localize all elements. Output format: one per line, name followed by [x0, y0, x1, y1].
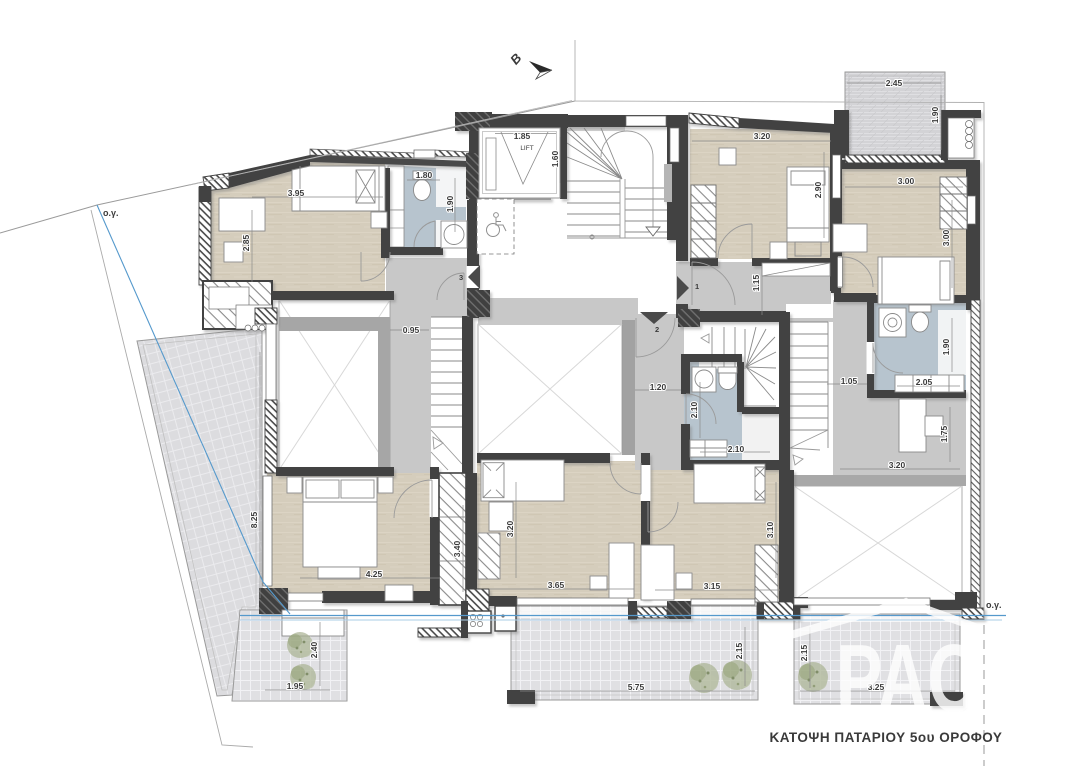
- svg-text:ΚΑΤΟΨΗ ΠΑΤΑΡΙΟΥ 5ου ΟΡΟΦΟΥ: ΚΑΤΟΨΗ ΠΑΤΑΡΙΟΥ 5ου ΟΡΟΦΟΥ: [770, 730, 1003, 745]
- svg-text:0.95: 0.95: [403, 325, 420, 335]
- svg-text:2.40: 2.40: [309, 641, 319, 658]
- svg-text:1: 1: [695, 282, 699, 291]
- svg-text:ο.γ.: ο.γ.: [103, 208, 119, 218]
- svg-text:3.40: 3.40: [452, 540, 462, 557]
- svg-text:2.45: 2.45: [886, 78, 903, 88]
- svg-text:2.90: 2.90: [813, 181, 823, 198]
- svg-text:3.20: 3.20: [889, 460, 906, 470]
- svg-text:1.60: 1.60: [550, 150, 560, 167]
- svg-text:1.85: 1.85: [514, 131, 531, 141]
- svg-text:1.90: 1.90: [941, 338, 951, 355]
- svg-text:ΡΑC: ΡΑC: [836, 625, 978, 732]
- svg-text:2.10: 2.10: [728, 444, 745, 454]
- svg-text:8.25: 8.25: [249, 511, 259, 528]
- svg-text:4.25: 4.25: [366, 569, 383, 579]
- svg-text:3.15: 3.15: [704, 581, 721, 591]
- svg-text:LIFT: LIFT: [520, 145, 533, 152]
- svg-text:3.95: 3.95: [288, 188, 305, 198]
- svg-text:2.05: 2.05: [916, 377, 933, 387]
- svg-text:3.00: 3.00: [941, 229, 951, 246]
- svg-text:5.75: 5.75: [628, 682, 645, 692]
- svg-text:3.00: 3.00: [898, 176, 915, 186]
- svg-text:1.90: 1.90: [445, 195, 455, 212]
- svg-text:1.20: 1.20: [650, 382, 667, 392]
- svg-text:2.85: 2.85: [241, 234, 251, 251]
- svg-text:3: 3: [459, 273, 463, 282]
- svg-text:1.95: 1.95: [287, 681, 304, 691]
- svg-text:3.20: 3.20: [754, 131, 771, 141]
- svg-text:2: 2: [655, 325, 659, 334]
- svg-text:3.10: 3.10: [765, 521, 775, 538]
- svg-text:3.65: 3.65: [548, 580, 565, 590]
- svg-text:1.90: 1.90: [930, 106, 940, 123]
- svg-text:1.80: 1.80: [416, 170, 433, 180]
- svg-text:2.15: 2.15: [734, 642, 744, 659]
- svg-text:2.10: 2.10: [689, 401, 699, 418]
- svg-text:1.05: 1.05: [841, 376, 858, 386]
- svg-text:2.15: 2.15: [799, 644, 809, 661]
- svg-text:1.75: 1.75: [939, 425, 949, 442]
- svg-text:3.20: 3.20: [505, 520, 515, 537]
- svg-text:ο.γ.: ο.γ.: [986, 600, 1002, 610]
- svg-text:1.15: 1.15: [751, 274, 761, 291]
